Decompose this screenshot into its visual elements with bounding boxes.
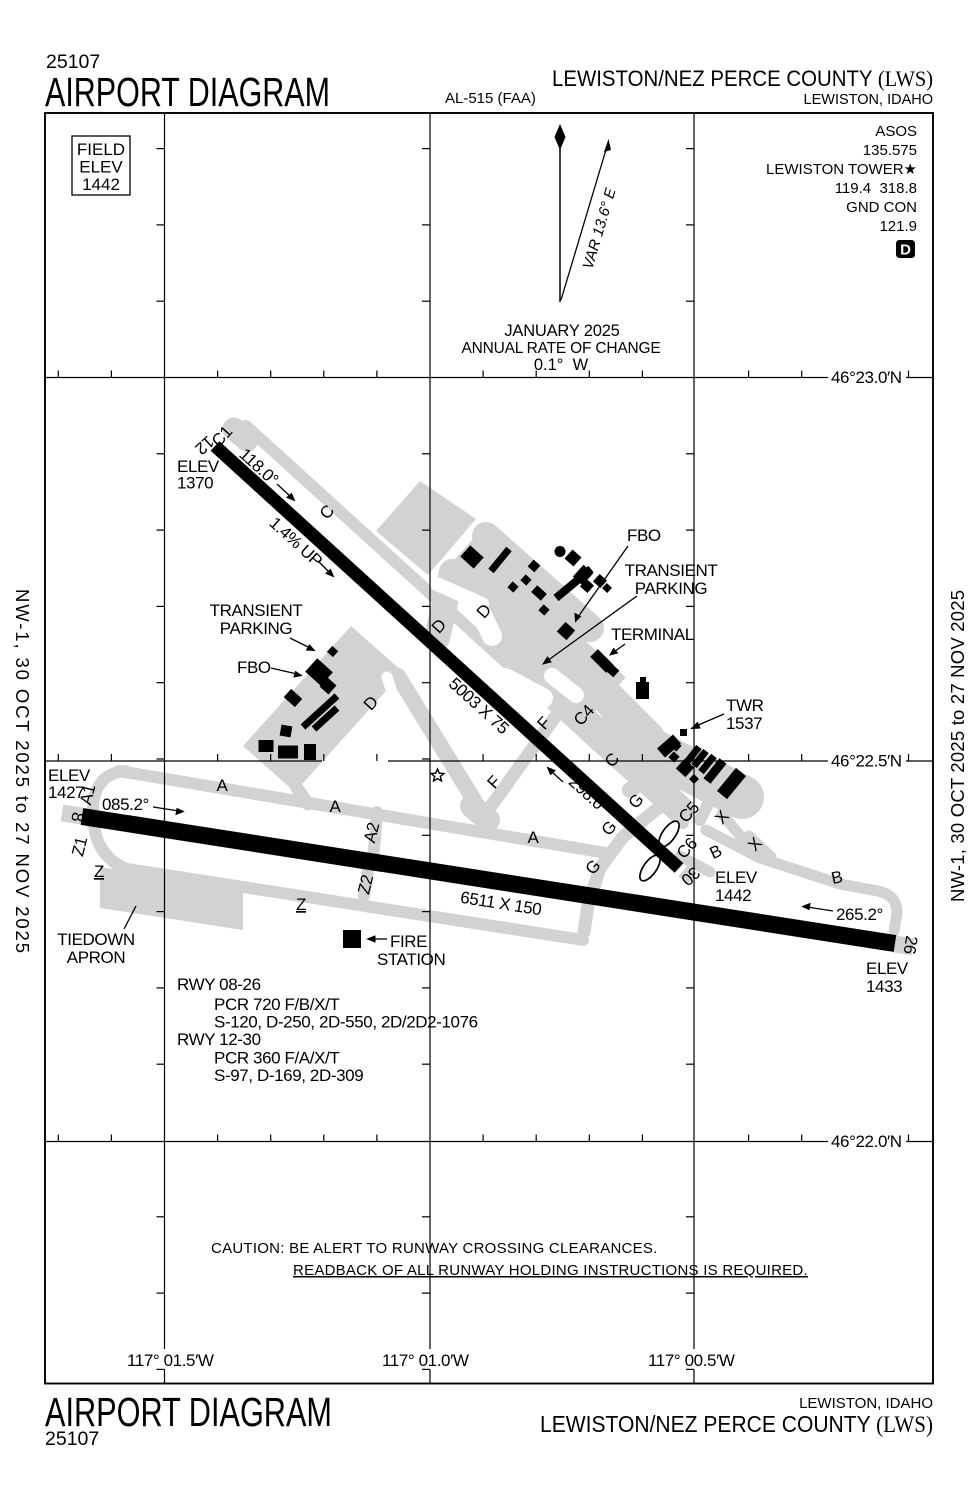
svg-text:A: A (217, 776, 229, 795)
svg-text:Z: Z (94, 862, 104, 881)
svg-text:FIELD: FIELD (77, 140, 125, 159)
svg-text:RWY 12-30: RWY 12-30 (177, 1030, 261, 1049)
svg-text:FBO: FBO (627, 526, 661, 545)
svg-text:46°22.5′N: 46°22.5′N (831, 752, 902, 771)
svg-text:TWR: TWR (726, 696, 764, 715)
svg-text:ELEV: ELEV (715, 868, 758, 887)
svg-text:46°23.0′N: 46°23.0′N (831, 368, 902, 387)
svg-text:NW-1, 30 OCT 2025 to 27 NOV: NW-1, 30 OCT 2025 to 27 NOV 2025 (12, 589, 33, 953)
svg-text:APRON: APRON (67, 948, 125, 967)
svg-text:RWY 08-26: RWY 08-26 (177, 975, 261, 994)
svg-text:TIEDOWN: TIEDOWN (57, 930, 134, 949)
svg-text:121.9: 121.9 (879, 218, 917, 235)
svg-text:265.2°: 265.2° (836, 905, 883, 924)
svg-text:PCR 360 F/A/X/T: PCR 360 F/A/X/T (214, 1049, 339, 1068)
svg-text:ANNUAL RATE OF CHANGE: ANNUAL RATE OF CHANGE (461, 340, 660, 357)
svg-text:A: A (330, 797, 342, 816)
svg-text:1442: 1442 (715, 886, 751, 905)
svg-text:085.2°: 085.2° (102, 795, 149, 814)
svg-text:FBO: FBO (237, 658, 271, 677)
svg-text:117° 00.5′W: 117° 00.5′W (648, 1351, 735, 1370)
svg-text:D: D (900, 242, 911, 259)
svg-text:1370: 1370 (177, 474, 213, 493)
svg-text:A: A (528, 828, 540, 847)
svg-text:1433: 1433 (866, 977, 902, 996)
svg-text:1442: 1442 (82, 175, 120, 194)
svg-text:46°22.0′N: 46°22.0′N (831, 1132, 902, 1151)
svg-text:0.1° W: 0.1° W (534, 356, 589, 374)
svg-text:LEWISTON, IDAHO: LEWISTON, IDAHO (804, 92, 933, 108)
svg-text:CAUTION: BE ALERT TO RUNWAY CR: CAUTION: BE ALERT TO RUNWAY CROSSING CLE… (211, 1240, 658, 1257)
svg-text:ASOS: ASOS (875, 123, 917, 140)
svg-text:TRANSIENT: TRANSIENT (210, 601, 303, 620)
svg-text:LEWISTON/NEZ PERCE COUNTY (LWS: LEWISTON/NEZ PERCE COUNTY (LWS) (552, 66, 933, 91)
svg-text:LEWISTON, IDAHO: LEWISTON, IDAHO (799, 1395, 933, 1412)
svg-text:26: 26 (900, 934, 922, 955)
svg-text:1537: 1537 (726, 714, 762, 733)
svg-text:GND CON: GND CON (846, 199, 917, 216)
svg-text:LEWISTON TOWER★: LEWISTON TOWER★ (766, 161, 917, 178)
svg-text:PCR 720 F/B/X/T: PCR 720 F/B/X/T (214, 995, 339, 1014)
svg-text:FIRE: FIRE (390, 932, 427, 951)
svg-text:JANUARY 2025: JANUARY 2025 (504, 322, 619, 340)
svg-text:PARKING: PARKING (635, 579, 707, 598)
svg-text:AL-515 (FAA): AL-515 (FAA) (445, 90, 536, 107)
svg-text:Z: Z (296, 895, 306, 914)
svg-text:TERMINAL: TERMINAL (611, 625, 694, 644)
svg-text:135.575: 135.575 (863, 142, 917, 159)
svg-text:TRANSIENT: TRANSIENT (625, 561, 718, 580)
svg-text:25107: 25107 (45, 1428, 99, 1450)
svg-text:LEWISTON/NEZ PERCE COUNTY (LWS: LEWISTON/NEZ PERCE COUNTY (LWS) (540, 1411, 933, 1437)
svg-text:PARKING: PARKING (220, 619, 292, 638)
svg-text:117° 01.0′W: 117° 01.0′W (382, 1351, 469, 1370)
svg-text:AIRPORT DIAGRAM: AIRPORT DIAGRAM (45, 69, 330, 115)
svg-text:S-120, D-250, 2D-550, 2D/2D2-1: S-120, D-250, 2D-550, 2D/2D2-1076 (214, 1013, 478, 1032)
svg-text:ELEV: ELEV (79, 158, 123, 177)
svg-text:ELEV: ELEV (866, 959, 909, 978)
svg-text:119.4 318.8: 119.4 318.8 (835, 180, 917, 197)
svg-text:READBACK OF ALL RUNWAY HOLDING: READBACK OF ALL RUNWAY HOLDING INSTRUCTI… (293, 1262, 808, 1279)
svg-text:STATION: STATION (377, 950, 445, 969)
svg-text:NW-1, 30 OCT 2025 to 27 NOV: NW-1, 30 OCT 2025 to 27 NOV 2025 (947, 590, 968, 902)
svg-text:117° 01.5′W: 117° 01.5′W (127, 1351, 214, 1370)
svg-text:S-97, D-169, 2D-309: S-97, D-169, 2D-309 (214, 1066, 363, 1085)
